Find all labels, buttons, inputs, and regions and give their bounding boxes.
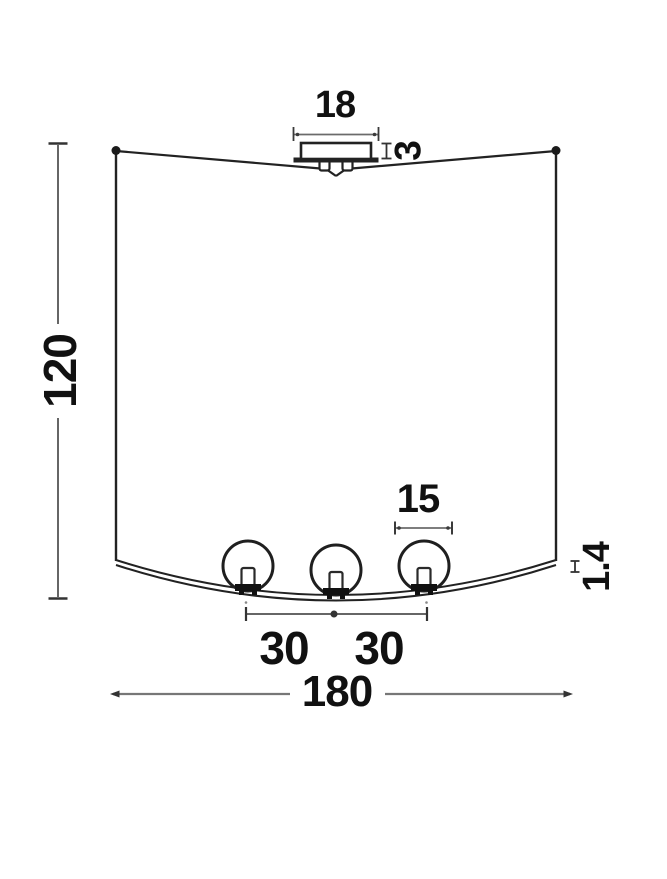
dimension-canopy-width <box>294 127 379 141</box>
dimension-globe-spacing <box>245 601 428 621</box>
fixture-height-label: 120 <box>37 334 83 408</box>
glass-globe-2 <box>311 545 361 599</box>
globe-diameter-label: 15 <box>397 479 440 519</box>
globe-spacing-left-label: 30 <box>259 625 308 671</box>
globe-2-mount-foot-right <box>340 595 345 599</box>
canopy-body <box>301 143 371 159</box>
canopy-width-label: 18 <box>315 86 355 124</box>
globe-2-mount <box>323 588 349 595</box>
left-corner-knot <box>112 146 121 155</box>
panel-thickness-label: 1.4 <box>578 542 616 592</box>
lamp-line-art <box>0 0 667 879</box>
globe-3-mount-foot-left <box>415 591 420 595</box>
dimension-globe-diameter <box>395 522 452 535</box>
dimension-drawing-canvas: 18 3 120 15 1.4 30 30 180 <box>0 0 667 879</box>
canopy-height-label: 3 <box>390 141 427 161</box>
globe-1-mount <box>235 584 261 591</box>
globe-1-mount-foot-right <box>252 591 257 595</box>
glass-globes <box>223 541 449 599</box>
globe-3-mount <box>411 584 437 591</box>
globe-spacing-right-label: 30 <box>354 625 403 671</box>
right-corner-knot <box>552 146 561 155</box>
fixture-width-label: 180 <box>302 670 372 714</box>
shade-outline <box>112 146 561 561</box>
globe-2-mount-foot-left <box>327 595 332 599</box>
globe-3-mount-foot-right <box>428 591 433 595</box>
globe-1-mount-foot-left <box>239 591 244 595</box>
